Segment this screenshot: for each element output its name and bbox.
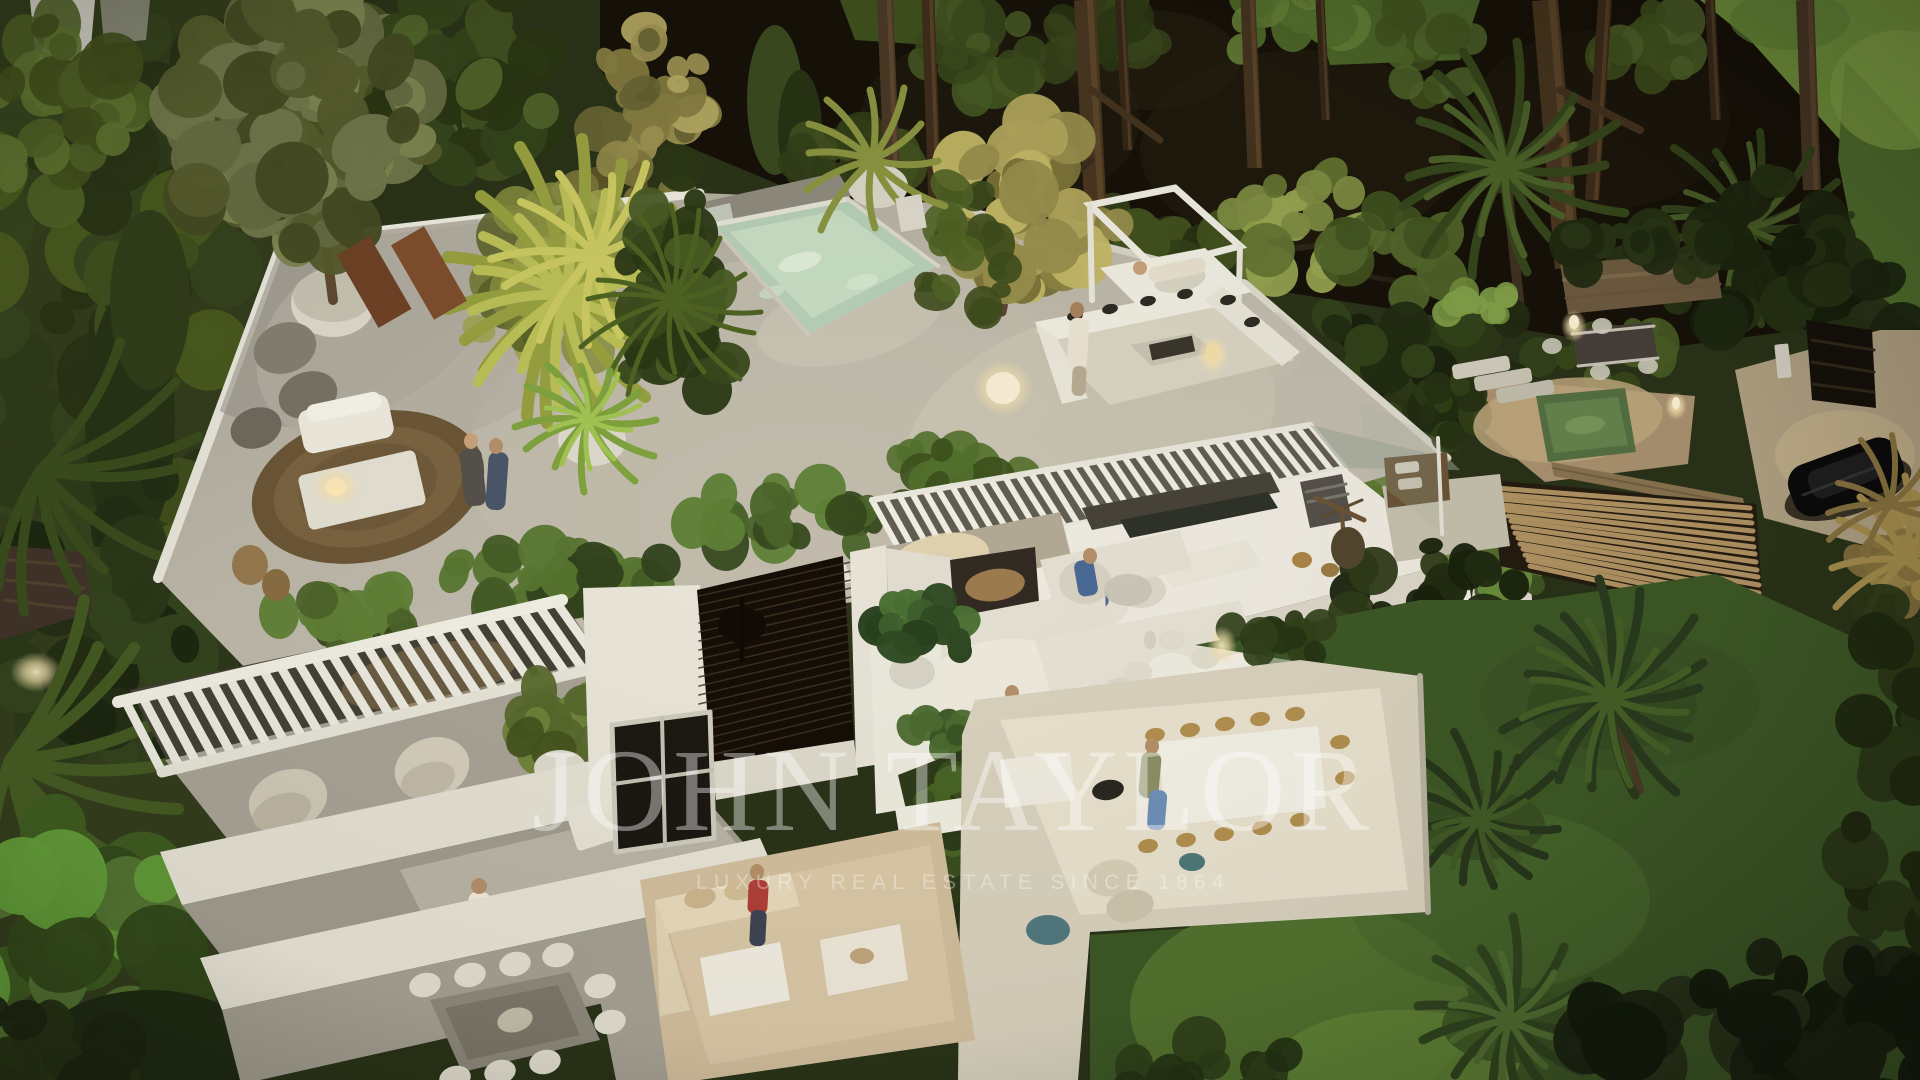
svg-text:LUXURY REAL ESTATE SINCE 1864: LUXURY REAL ESTATE SINCE 1864 (696, 871, 1230, 894)
svg-text:JOHN TAYLOR: JOHN TAYLOR (532, 725, 1374, 856)
